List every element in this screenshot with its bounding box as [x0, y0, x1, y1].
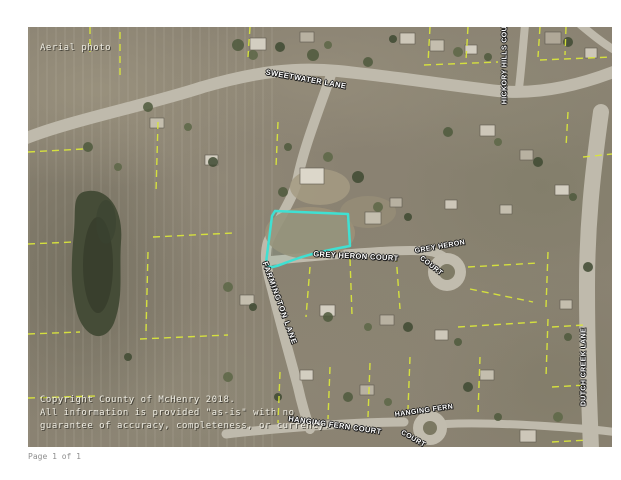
- copyright-line-1: Copyright County of McHenry 2018.: [40, 394, 330, 407]
- pond: [72, 191, 122, 336]
- copyright-line-3: guarantee of accuracy, completeness, or …: [40, 420, 330, 433]
- road-corner-northeast: [576, 27, 612, 51]
- street-label-hickory-hills-court: HICKORY HILLS COURT: [502, 27, 509, 104]
- printed-map-page: Aerial photo SWEETWATER LANE HICKORY HIL…: [0, 0, 621, 480]
- page-number-footer: Page 1 of 1: [28, 452, 81, 461]
- road-hickory-hills-court: [519, 27, 525, 88]
- aerial-photo-map: Aerial photo SWEETWATER LANE HICKORY HIL…: [28, 27, 612, 447]
- road-dutch-creek-lane: [587, 112, 601, 447]
- street-label-dutch-creek-lane: DUTCH CREEK LANE: [581, 328, 588, 406]
- copyright-line-2: All information is provided "as-is" with…: [40, 407, 330, 420]
- cul-de-sacs: [413, 253, 466, 445]
- copyright-notice: Copyright County of McHenry 2018. All in…: [40, 394, 330, 433]
- aerial-photo-note: Aerial photo: [40, 43, 111, 53]
- map-graphics: [28, 27, 612, 447]
